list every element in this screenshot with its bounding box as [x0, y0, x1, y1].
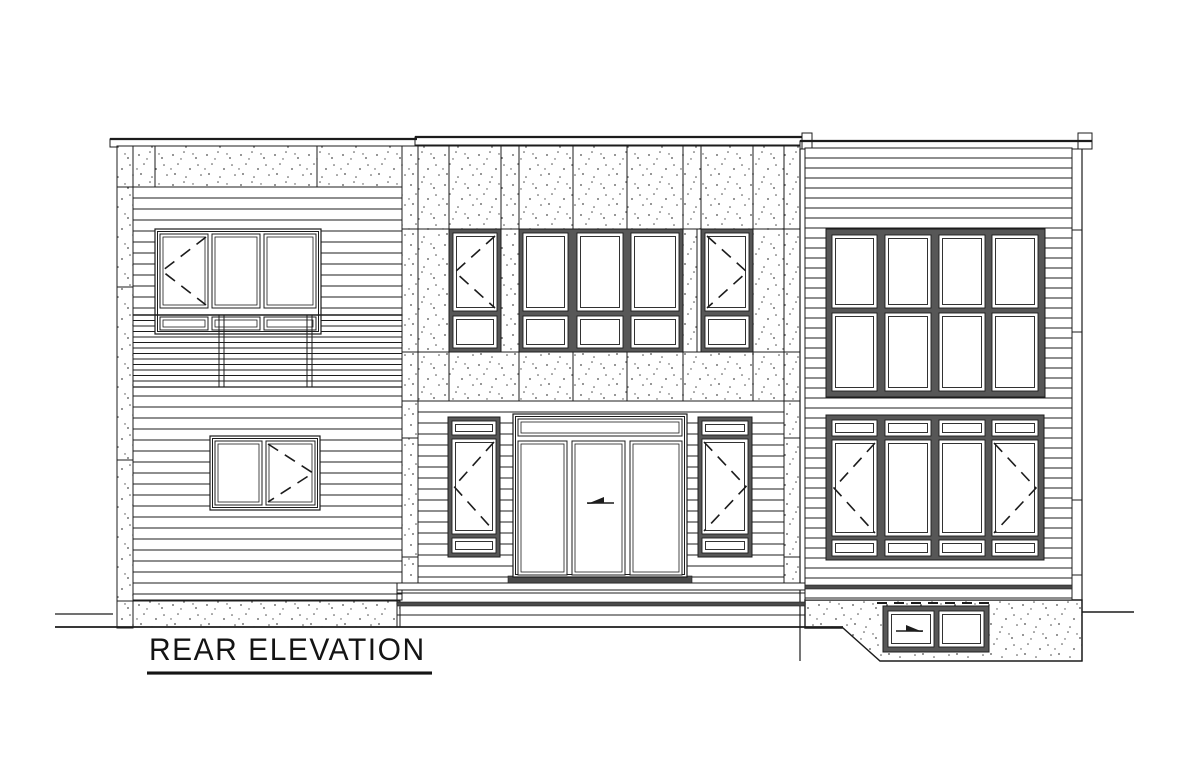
right-lower-window	[826, 415, 1044, 560]
drawing-title: REAR ELEVATION	[147, 633, 432, 675]
basement-window	[883, 606, 989, 652]
middle-upper-window-right	[701, 229, 753, 352]
door-sidelite-right	[698, 417, 752, 557]
elevation-sheet: REAR ELEVATION	[0, 0, 1200, 768]
door-sidelite-left	[448, 417, 500, 557]
left-upper-window	[155, 229, 321, 334]
patio-door	[513, 414, 687, 577]
left-lower-window	[210, 436, 320, 510]
right-upper-window-grid	[826, 229, 1045, 397]
middle-upper-window-left	[449, 229, 501, 352]
middle-upper-window-center	[519, 229, 683, 352]
